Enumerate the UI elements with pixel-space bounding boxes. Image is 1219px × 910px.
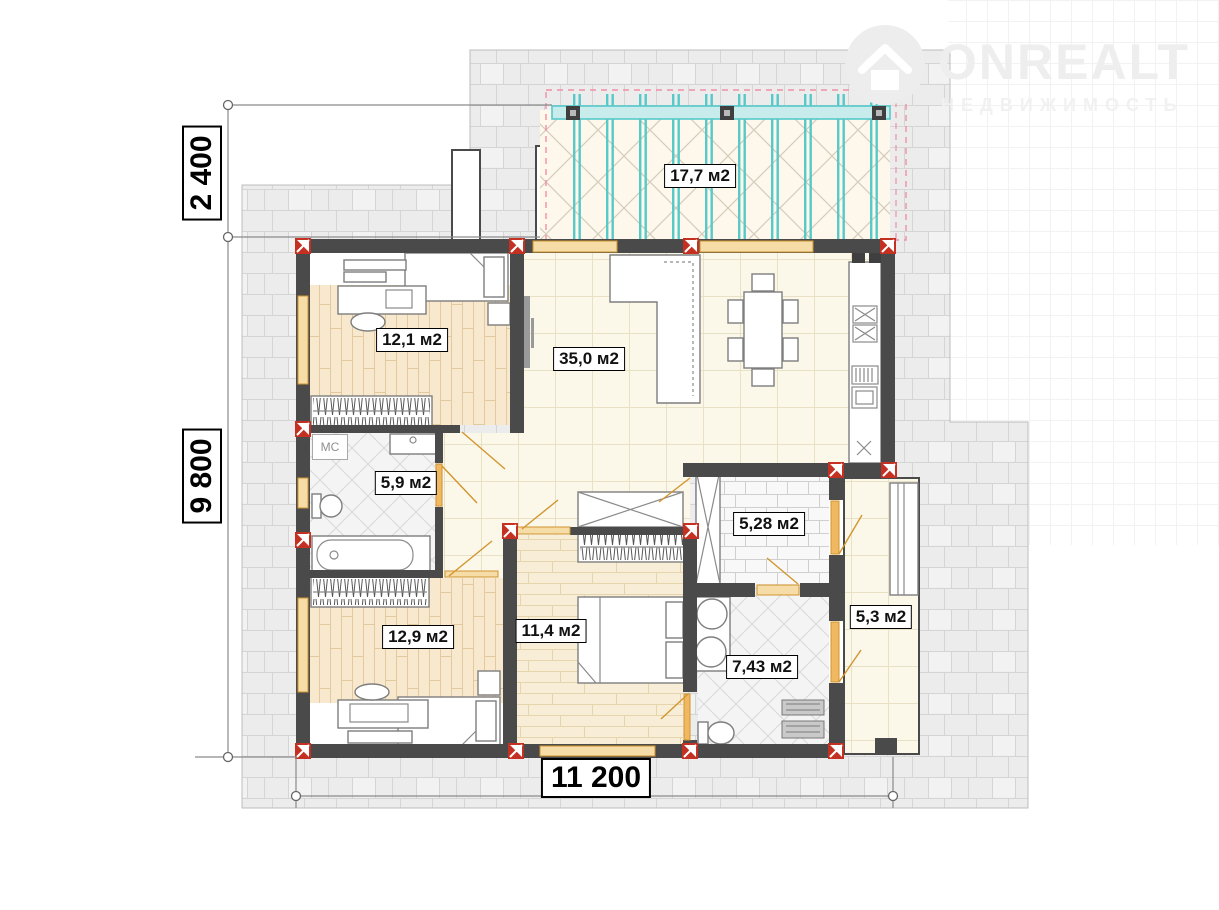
round-sink xyxy=(697,599,727,629)
bedside-shelf xyxy=(478,671,500,695)
room-label-bathroom-small: 5,9 м2 xyxy=(375,471,437,495)
desk xyxy=(338,286,426,314)
room-label-bedroom-bottom-center: 11,4 м2 xyxy=(516,619,587,643)
window xyxy=(533,241,617,252)
entry-step xyxy=(875,738,897,755)
washing-machine-label: МС xyxy=(312,434,348,460)
door-sill xyxy=(757,585,799,595)
toilet-bowl xyxy=(320,495,342,517)
pillow xyxy=(666,642,683,678)
window xyxy=(298,296,308,384)
towel-rail xyxy=(782,700,824,715)
logo-brand-text: ONREALT xyxy=(938,34,1190,90)
chair xyxy=(752,369,774,386)
window xyxy=(298,478,308,508)
dimension-label-top-left: 2 400 xyxy=(182,125,222,220)
door-leaf xyxy=(831,622,839,682)
pillow xyxy=(484,257,504,297)
toilet-bowl xyxy=(708,722,734,744)
dimension-label-bottom: 11 200 xyxy=(541,758,651,798)
dimension-label-left: 9 800 xyxy=(182,428,222,523)
pillow xyxy=(666,602,683,638)
onrealt-logo: ONREALT НЕДВИЖИМОСТЬ xyxy=(842,18,1219,126)
dining-table xyxy=(744,292,782,368)
tv-panel xyxy=(524,296,530,368)
door-sill xyxy=(517,527,570,534)
round-sink xyxy=(696,637,726,667)
window xyxy=(298,598,308,692)
room-label-entry-hall: 5,3 м2 xyxy=(850,605,912,629)
room-label-entry-vestibule: 5,28 м2 xyxy=(733,512,805,536)
chair xyxy=(728,338,743,361)
towel-rail xyxy=(782,721,824,738)
floor-plan-page: 17,7 м2 12,1 м2 35,0 м2 5,9 м2 12,9 м2 1… xyxy=(0,0,1219,910)
room-label-bedroom-top-left: 12,1 м2 xyxy=(376,328,448,352)
chair xyxy=(783,338,798,361)
house-icon xyxy=(842,22,928,108)
window xyxy=(700,241,813,252)
printer-shelf xyxy=(344,260,406,270)
window xyxy=(540,746,655,756)
chair xyxy=(783,300,798,323)
entry-door-leaf xyxy=(831,501,839,554)
room-label-bathroom-large: 7,43 м2 xyxy=(726,655,798,679)
kitchen-counter xyxy=(849,262,881,463)
room-label-living-kitchen: 35,0 м2 xyxy=(553,347,625,371)
pillow xyxy=(476,701,496,741)
chair xyxy=(728,300,743,323)
logo-tagline-text: НЕДВИЖИМОСТЬ xyxy=(941,94,1183,116)
room-label-bedroom-bottom-left: 12,9 м2 xyxy=(382,625,454,649)
door-leaf xyxy=(684,694,690,740)
room-label-terrace: 17,7 м2 xyxy=(664,164,736,188)
pc-case xyxy=(348,731,412,743)
chair xyxy=(752,274,774,291)
toilet-tank xyxy=(698,722,708,744)
bedside-shelf xyxy=(488,303,510,325)
chair xyxy=(355,684,389,700)
